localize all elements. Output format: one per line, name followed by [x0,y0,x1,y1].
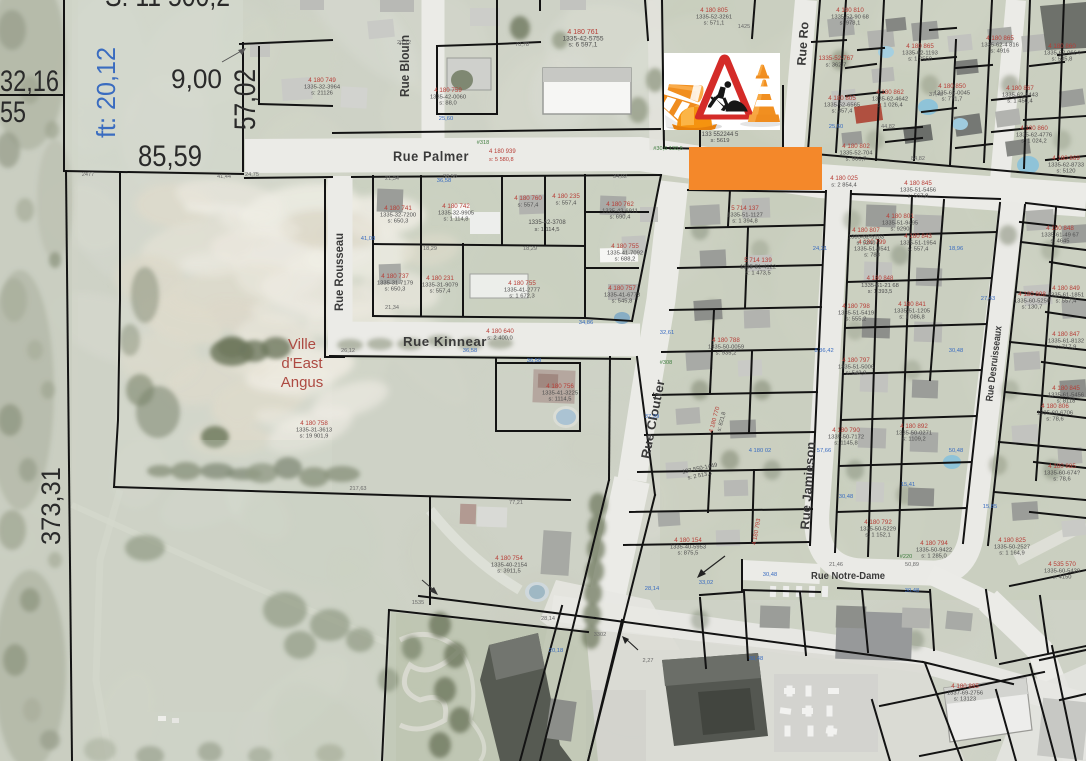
svg-text:s: 8118: s: 8118 [1057,399,1076,405]
svg-text:1335-61-1851: 1335-61-1851 [1048,292,1084,298]
svg-text:4 180 235: 4 180 235 [552,193,580,200]
svg-text:4 180 867: 4 180 867 [1006,85,1034,92]
svg-text:4 180 805: 4 180 805 [700,7,728,14]
svg-text:4 180 885: 4 180 885 [1048,463,1076,470]
svg-text:18,96: 18,96 [949,246,964,252]
svg-text:1335-61-49 67: 1335-61-49 67 [1041,232,1079,238]
svg-text:s: 1 450,4: s: 1 450,4 [1007,99,1033,105]
svg-text:s: 535,8: s: 535,8 [1052,57,1073,63]
svg-text:s: 1114,5: s: 1114,5 [549,397,572,403]
svg-text:1335-42-6911: 1335-42-6911 [602,208,638,214]
svg-text:4 180 825: 4 180 825 [998,537,1026,544]
svg-text:s: 362,7: s: 362,7 [826,62,847,68]
svg-text:Rue Kinnear: Rue Kinnear [403,334,487,349]
svg-text:1335-52-704: 1335-52-704 [840,150,874,156]
svg-text:s: 688,2: s: 688,2 [615,257,636,263]
svg-text:s: 4150: s: 4150 [1052,575,1071,581]
svg-text:d'East: d'East [281,355,323,372]
svg-text:s: 545,8: s: 545,8 [612,299,633,305]
svg-text:s: 571,1: s: 571,1 [704,21,725,27]
svg-text:1335-60-5250: 1335-60-5250 [1014,298,1050,304]
svg-text:8 36,42: 8 36,42 [814,348,833,354]
svg-text:s: 1 114,8: s: 1 114,8 [443,217,468,223]
svg-text:4 180 762: 4 180 762 [606,201,634,208]
svg-text:44,82: 44,82 [881,124,895,130]
svg-text:1335-51-9495: 1335-51-9495 [882,220,918,226]
svg-text:2477: 2477 [82,172,94,178]
svg-text:s: 1 473,5: s: 1 473,5 [745,271,770,277]
svg-text:s: 1 394,8: s: 1 394,8 [732,219,757,225]
svg-text:s: 1 024,2: s: 1 024,2 [1021,139,1046,145]
svg-text:34,02: 34,02 [613,174,627,180]
svg-text:1335-62-8733: 1335-62-8733 [1048,162,1084,168]
svg-text:4 180 755: 4 180 755 [611,243,639,250]
svg-text:4 180 847: 4 180 847 [1052,331,1080,338]
svg-text:s: 4916: s: 4916 [990,49,1009,55]
svg-text:1335-50-9422: 1335-50-9422 [916,547,952,553]
svg-text:55: 55 [0,96,26,129]
svg-text:s: 557,4: s: 557,4 [430,289,451,295]
svg-text:s: 557,4: s: 557,4 [1056,299,1077,305]
svg-text:4 535 570: 4 535 570 [1048,561,1076,568]
svg-text:s: 6 597,1: s: 6 597,1 [569,42,598,49]
svg-text:4 180 850: 4 180 850 [938,83,966,90]
svg-text:37,99: 37,99 [645,414,660,420]
svg-text:1335-50-7172: 1335-50-7172 [828,434,864,440]
svg-text:4 180 843: 4 180 843 [904,233,932,240]
svg-text:1335-52-6565: 1335-52-6565 [824,102,860,108]
svg-text:1335-31-9079: 1335-31-9079 [422,282,458,288]
svg-text:1335-51-1127: 1335-51-1127 [727,212,763,218]
svg-text:32,61: 32,61 [660,330,675,336]
svg-text:57,02: 57,02 [229,69,262,130]
svg-text:1335-32-3964: 1335-32-3964 [304,84,341,90]
svg-text:18,29: 18,29 [523,246,537,252]
svg-text:s: 717,9: s: 717,9 [1056,345,1077,351]
svg-text:1335-51-8541: 1335-51-8541 [854,246,890,252]
svg-text:#30,6 130,6: #30,6 130,6 [653,146,683,152]
svg-text:1425: 1425 [738,24,750,30]
svg-text:1335-32-7200: 1335-32-7200 [380,212,416,218]
svg-text:s: 9240: s: 9240 [856,241,875,247]
svg-text:50,89: 50,89 [905,562,919,568]
svg-text:4 180 759: 4 180 759 [434,87,462,94]
svg-text:s: 2 400,0: s: 2 400,0 [487,335,512,341]
svg-text:4 180 025: 4 180 025 [830,175,858,182]
svg-text:1335-51-1954: 1335-51-1954 [900,240,937,246]
svg-text:s: 557,4: s: 557,4 [556,200,577,206]
svg-text:s: 19 901,9: s: 19 901,9 [300,434,329,440]
svg-text:1335-52-3261: 1335-52-3261 [696,14,732,20]
svg-text:32,16: 32,16 [0,65,59,98]
svg-text:Angus: Angus [281,374,324,391]
svg-text:s: 357,4: s: 357,4 [832,109,853,115]
svg-text:s: 5619: s: 5619 [710,138,729,144]
svg-text:5 714 137: 5 714 137 [731,205,759,212]
svg-text:36,58: 36,58 [527,358,542,364]
svg-text:4 180 801: 4 180 801 [886,213,914,220]
svg-text:4 180 865: 4 180 865 [906,43,934,50]
svg-text:s: 1 152,1: s: 1 152,1 [865,533,890,539]
svg-text:217,63: 217,63 [349,486,366,492]
svg-text:4 180 892: 4 180 892 [900,423,928,430]
svg-text:4 180 755: 4 180 755 [508,280,536,287]
svg-text:41,44: 41,44 [217,174,231,180]
svg-text:41,08: 41,08 [361,236,376,242]
svg-text:21,34: 21,34 [385,305,399,311]
svg-text:4 180 742: 4 180 742 [442,203,470,210]
svg-text:4 180 749: 4 180 749 [308,77,336,84]
svg-text:36,50: 36,50 [443,174,457,180]
svg-text:#308: #308 [660,360,672,366]
svg-text:s: 5120: s: 5120 [1056,169,1075,175]
svg-text:1335-41-2777: 1335-41-2777 [504,287,540,293]
svg-text:28,14: 28,14 [645,586,660,592]
svg-text:4 180 231: 4 180 231 [426,275,454,282]
svg-text:s: 21126: s: 21126 [311,91,333,97]
svg-text:s: 1 114,5: s: 1 114,5 [534,227,559,233]
svg-text:Rue Palmer: Rue Palmer [393,149,469,164]
svg-text:4 180 754: 4 180 754 [495,555,523,562]
svg-text:1335-51-1205: 1335-51-1205 [894,308,930,314]
svg-text:4 180 02: 4 180 02 [749,448,772,454]
svg-text:1335-40-2154: 1335-40-2154 [491,562,528,568]
svg-text:s: 557,4: s: 557,4 [518,202,539,208]
svg-text:77,21: 77,21 [509,500,523,506]
svg-text:1335-41-7092: 1335-41-7092 [607,250,643,256]
svg-text:Rue Rousseau: Rue Rousseau [334,233,346,311]
svg-text:30,48: 30,48 [763,572,778,578]
svg-text:4 180 797: 4 180 797 [842,357,870,364]
svg-text:24,31: 24,31 [813,246,828,252]
svg-text:4 180 810: 4 180 810 [836,7,864,14]
svg-text:s: 1145,8: s: 1145,8 [834,441,857,447]
svg-text:1335-52-767: 1335-52-767 [818,55,854,62]
svg-text:s: 1 393,5: s: 1 393,5 [868,289,893,295]
svg-text:1335-51-5419: 1335-51-5419 [838,310,874,316]
svg-text:s: 935,2: s: 935,2 [716,351,737,357]
svg-text:1335-31-7179: 1335-31-7179 [377,280,413,286]
svg-text:s: 978,1: s: 978,1 [840,21,861,27]
svg-text:25,60: 25,60 [829,124,844,130]
svg-text:4 180 760: 4 180 760 [514,195,542,202]
svg-text:Ville: Ville [288,336,316,353]
svg-text:4 180 848: 4 180 848 [1046,225,1074,232]
svg-text:s: 78,6: s: 78,6 [1053,477,1070,483]
svg-text:4 180 802: 4 180 802 [842,143,870,150]
svg-text:4 180 841: 4 180 841 [898,301,926,308]
svg-text:s: 1 285,0: s: 1 285,0 [921,554,946,560]
svg-text:1335-50-5229: 1335-50-5229 [860,526,896,532]
svg-text:4 180 794: 4 180 794 [920,540,948,547]
svg-text:1335-52-90 68: 1335-52-90 68 [831,14,869,20]
svg-text:s: 771,7: s: 771,7 [942,97,963,103]
svg-text:s: 88,0: s: 88,0 [439,101,456,107]
svg-text:1335-51-5456: 1335-51-5456 [900,187,936,193]
svg-text:s: 1 2550: s: 1 2550 [908,57,932,63]
svg-text:s: 542,9: s: 542,9 [846,371,867,377]
svg-text:4 180 756: 4 180 756 [546,383,574,390]
svg-text:s: 9290: s: 9290 [890,227,909,233]
svg-text:1335-50-2527: 1335-50-2527 [994,544,1030,550]
svg-text:1535: 1535 [412,600,424,606]
svg-text:1335-60-674?: 1335-60-674? [1044,470,1081,476]
svg-text:84,82: 84,82 [911,156,925,162]
svg-text:4 180 741: 4 180 741 [384,205,412,212]
svg-text:1335-50-0059: 1335-50-0059 [708,344,744,350]
svg-text:4 180 798: 4 180 798 [842,303,870,310]
svg-text:1335-31-3613: 1335-31-3613 [296,427,332,433]
svg-text:1335-42-3708: 1335-42-3708 [528,220,566,226]
svg-text:4 180 845: 4 180 845 [1052,385,1080,392]
svg-text:1335-62-4443: 1335-62-4443 [1002,92,1038,98]
svg-text:ft: 20,12: ft: 20,12 [91,47,121,138]
svg-text:36,58: 36,58 [463,348,478,354]
svg-text:4 180 790: 4 180 790 [832,427,860,434]
svg-text:s: 555,2: s: 555,2 [846,317,867,323]
svg-text:30,48: 30,48 [949,348,964,354]
svg-text:s: 650,3: s: 650,3 [385,287,406,293]
svg-text:3302: 3302 [594,632,606,638]
svg-text:s: 567,8: s: 567,8 [908,194,929,200]
svg-text:s: 130,7: s: 130,7 [1022,305,1043,311]
svg-text:33,02: 33,02 [699,580,714,586]
svg-text:1335-32-9905: 1335-32-9905 [438,210,474,216]
svg-text:4 180 792: 4 180 792 [864,519,892,526]
svg-text:2,27: 2,27 [643,658,654,664]
svg-text:1335-62-1193: 1335-62-1193 [902,50,938,56]
svg-text:s: 1 672,3: s: 1 672,3 [509,294,534,300]
svg-text:1335-51-5006: 1335-51-5006 [838,364,874,370]
svg-text:1335-40-5953: 1335-40-5953 [670,544,706,550]
svg-text:4 180 807: 4 180 807 [852,227,880,234]
svg-text:4 180 758: 4 180 758 [300,420,328,427]
svg-text:57,66: 57,66 [817,448,832,454]
svg-text:1335-42-0060: 1335-42-0060 [430,94,466,100]
svg-text:s: 875,5: s: 875,5 [678,551,699,557]
svg-text:9,00: 9,00 [171,64,222,94]
svg-text:30,48: 30,48 [905,588,920,594]
svg-text:373,31: 373,31 [36,467,66,545]
svg-text:4 180 788: 4 180 788 [712,337,740,344]
svg-text:4 180 757: 4 180 757 [608,285,636,292]
svg-text:24,75: 24,75 [245,172,259,178]
svg-text:s: 1 164,9: s: 1 164,9 [999,551,1024,557]
svg-text:s: 906,7: s: 906,7 [846,157,867,163]
svg-text:4 180 939: 4 180 939 [489,149,516,155]
svg-text:4 180 845: 4 180 845 [904,180,932,187]
svg-text:27,43: 27,43 [981,296,996,302]
svg-text:18,29: 18,29 [423,246,437,252]
svg-text:#220: #220 [900,554,912,560]
svg-text:s: 5 580,8: s: 5 580,8 [489,157,514,163]
svg-text:4 180 869: 4 180 869 [1052,155,1080,162]
svg-text:1335-60-5420: 1335-60-5420 [1044,568,1080,574]
svg-text:15,85: 15,85 [983,504,998,510]
svg-text:1337-69-2756: 1337-69-2756 [947,690,983,696]
svg-text:s: 690,4: s: 690,4 [610,215,631,221]
svg-text:28,14: 28,14 [541,616,555,622]
svg-text:s: 4645: s: 4645 [1050,239,1069,245]
svg-text:4 180 154: 4 180 154 [674,537,702,544]
svg-text:1335-62-4642: 1335-62-4642 [872,96,908,102]
svg-text:30,48: 30,48 [839,494,854,500]
svg-text:1335-41-3225: 1335-41-3225 [542,390,578,396]
svg-text:1335-61-8132: 1335-61-8132 [1048,338,1084,344]
svg-text:1335-52-5103: 1335-52-5103 [848,234,884,240]
svg-text:20,12: 20,12 [397,40,411,46]
svg-text:1335-62-4776: 1335-62-4776 [1016,132,1052,138]
svg-text:1335-41-6773: 1335-41-6773 [604,292,640,298]
svg-text:s: 1109,2: s: 1109,2 [902,437,925,443]
svg-text:s: 1 086,8: s: 1 086,8 [899,315,924,321]
svg-text:4 180 895: 4 180 895 [951,683,979,690]
svg-text:1335-61-5456: 1335-61-5456 [1048,392,1084,398]
svg-text:85,59: 85,59 [138,140,202,173]
svg-text:4 180 805: 4 180 805 [828,95,856,102]
svg-text:1335-62-4 816: 1335-62-4 816 [981,42,1019,48]
svg-text:S: 11 500,2: S: 11 500,2 [105,0,230,13]
svg-text:4 180 808: 4 180 808 [1018,291,1046,298]
svg-text:20,18: 20,18 [549,648,564,654]
svg-text:s: 788: s: 788 [864,253,880,259]
svg-text:25,60: 25,60 [439,116,454,122]
svg-text:4 180 865: 4 180 865 [986,35,1014,42]
svg-text:s: 3911,5: s: 3911,5 [497,569,520,575]
svg-text:s: 78,6: s: 78,6 [1046,417,1063,423]
svg-text:1335-60-6706: 1335-60-6706 [1037,410,1073,416]
svg-text:4 180 860: 4 180 860 [1048,43,1076,50]
svg-text:4 180 737: 4 180 737 [381,273,409,280]
svg-text:34,86: 34,86 [579,320,594,326]
svg-text:30,48: 30,48 [749,656,764,662]
svg-text:s: 557,4: s: 557,4 [908,247,929,253]
svg-text:s: 13123: s: 13123 [954,697,976,703]
svg-text:1335-50-0271: 1335-50-0271 [896,430,932,436]
svg-text:#318: #318 [477,140,489,146]
svg-text:37,48: 37,48 [929,92,943,98]
svg-text:1335-51-4122: 1335-51-4122 [740,264,776,270]
svg-text:4 180 640: 4 180 640 [486,328,514,335]
svg-text:Rue Notre-Dame: Rue Notre-Dame [811,570,885,582]
svg-text:s: 650,3: s: 650,3 [388,219,409,225]
svg-text:4 180 848: 4 180 848 [867,276,894,282]
svg-text:21,46: 21,46 [829,562,843,568]
svg-text:21,34: 21,34 [385,176,399,182]
svg-text:4 180 860: 4 180 860 [1020,125,1048,132]
svg-text:4 180 862: 4 180 862 [876,89,904,96]
svg-text:70,78: 70,78 [515,42,529,48]
svg-text:26,12: 26,12 [341,348,355,354]
svg-text:50,48: 50,48 [949,448,964,454]
svg-text:5 714 139: 5 714 139 [744,257,772,264]
svg-text:15,41: 15,41 [901,482,916,488]
svg-text:s: 2 854,4: s: 2 854,4 [831,182,857,188]
svg-text:1335-62-0664: 1335-62-0664 [1044,50,1081,56]
svg-text:4 180 849: 4 180 849 [1052,285,1080,292]
svg-text:s: 1 026,4: s: 1 026,4 [877,103,903,109]
